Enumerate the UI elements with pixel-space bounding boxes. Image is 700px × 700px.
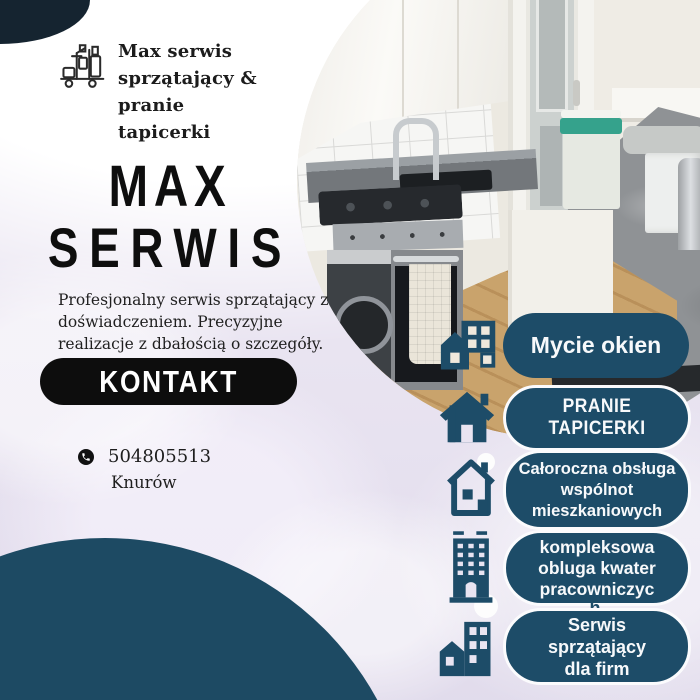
service-pill-obsluga-wspolnot[interactable]: Całoroczna obsługa wspólnot mieszkaniowy… bbox=[503, 450, 691, 530]
service-pill-mycie-okien[interactable]: Mycie okien bbox=[503, 313, 689, 378]
photo-lower-cabinet bbox=[508, 210, 613, 328]
logo-line: sprzątający & bbox=[118, 65, 257, 92]
service-pill-pranie-tapicerki[interactable]: PRANIE TAPICERKI bbox=[503, 385, 691, 451]
office-building-icon bbox=[446, 528, 496, 606]
house-and-building-icon bbox=[439, 317, 499, 377]
photo-steel-bin bbox=[678, 158, 700, 250]
service-label: Całoroczna obsługa wspólnot mieszkaniowy… bbox=[511, 459, 683, 522]
phone-row: 504805513 bbox=[78, 446, 211, 467]
logo-text: Max serwis sprzątający & pranie tapicerk… bbox=[118, 38, 257, 146]
title-line-2: SERWIS bbox=[31, 218, 310, 278]
cleaning-cart-icon bbox=[58, 38, 108, 90]
photo-stove-controls bbox=[333, 220, 464, 253]
kontakt-button-label: KONTAKT bbox=[99, 364, 238, 400]
flyer-canvas: Max serwis sprzątający & pranie tapicerk… bbox=[0, 0, 700, 700]
kontakt-button[interactable]: KONTAKT bbox=[40, 358, 297, 405]
logo-line: pranie bbox=[118, 92, 257, 119]
service-label: Mycie okien bbox=[531, 332, 661, 359]
service-pill-kwatery-pracownicze[interactable]: kompleksowa obluga kwater pracowniczyc bbox=[503, 530, 691, 606]
page-title: MAX SERWIS bbox=[0, 158, 340, 278]
logo-line: Max serwis bbox=[118, 38, 257, 65]
bottom-navy-circle bbox=[0, 538, 415, 700]
intro-text: Profesjonalny serwis sprzątający z doświ… bbox=[58, 289, 358, 355]
phone-icon bbox=[78, 449, 94, 465]
home-icon bbox=[436, 386, 498, 448]
service-label: Serwis sprzątający dla firm bbox=[536, 614, 658, 680]
logo-line: tapicerki bbox=[118, 119, 257, 146]
city: Knurów bbox=[111, 473, 211, 492]
service-pill-serwis-dla-firm[interactable]: Serwis sprzątający dla firm bbox=[503, 608, 691, 685]
service-label: PRANIE TAPICERKI bbox=[513, 396, 680, 440]
photo-courtyard-building-2 bbox=[540, 126, 562, 206]
house-chimney-icon bbox=[444, 453, 498, 519]
photo-gray-appliance bbox=[623, 126, 700, 154]
logo: Max serwis sprzątający & pranie tapicerk… bbox=[58, 38, 257, 146]
phone-number: 504805513 bbox=[108, 446, 211, 467]
photo-door-handle bbox=[573, 80, 580, 106]
service-label: kompleksowa obluga kwater pracowniczyc bbox=[527, 537, 667, 600]
photo-courtyard-building bbox=[536, 0, 568, 112]
contact-info: 504805513 Knurów bbox=[78, 446, 211, 492]
title-line-1: MAX bbox=[31, 158, 310, 216]
photo-faucet bbox=[393, 118, 439, 180]
city-buildings-icon bbox=[438, 618, 494, 680]
photo-green-lid-bin bbox=[563, 110, 620, 209]
